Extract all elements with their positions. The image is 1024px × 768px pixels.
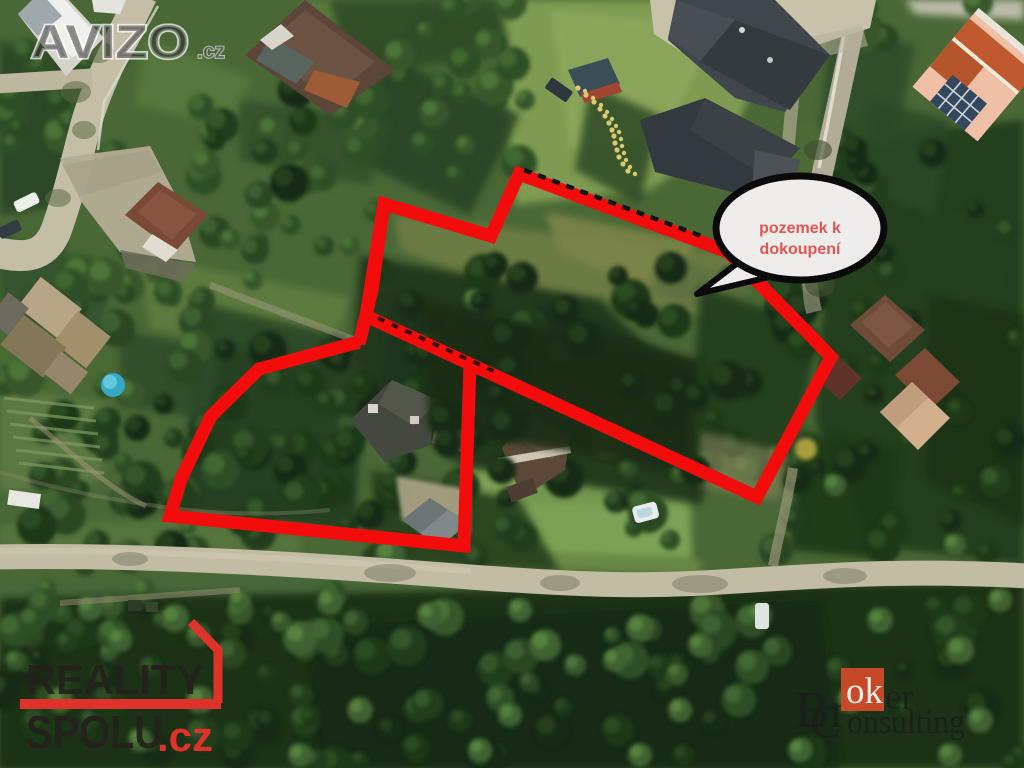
svg-text:SPOLU: SPOLU — [26, 706, 163, 758]
svg-text:dokoupení: dokoupení — [760, 241, 841, 258]
svg-text:AVIZO: AVIZO — [31, 15, 189, 68]
svg-text:onsulting: onsulting — [847, 704, 965, 741]
svg-text:pozemek k: pozemek k — [759, 220, 841, 237]
svg-text:.cz: .cz — [157, 713, 213, 760]
svg-text:REALITY: REALITY — [26, 656, 204, 703]
svg-text:C: C — [810, 696, 841, 747]
svg-text:.cz: .cz — [197, 40, 225, 63]
